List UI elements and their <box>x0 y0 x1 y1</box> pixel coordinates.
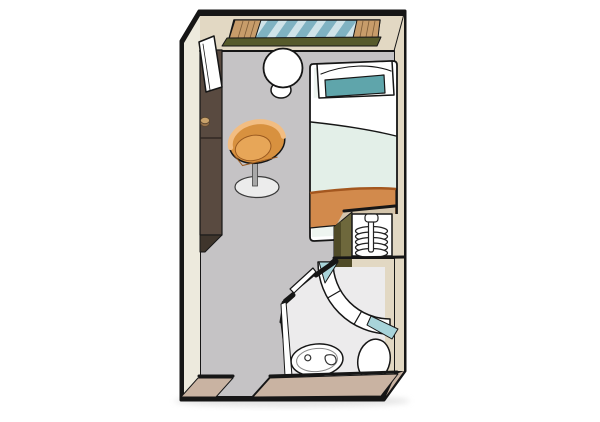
hanger-closet <box>334 206 404 258</box>
bottom-wall <box>181 372 398 397</box>
basin-drain <box>305 355 312 362</box>
closet-bathroom-divider <box>334 257 404 258</box>
cabin-floor-plan <box>0 0 600 422</box>
bottom-wall-right-face <box>253 374 398 397</box>
curtain-left <box>229 20 261 39</box>
window-sill <box>222 37 381 46</box>
floor-plan-canvas <box>0 0 600 422</box>
left-wall-face <box>184 16 200 396</box>
curtain-right <box>353 20 380 38</box>
window-wall <box>200 14 404 52</box>
round-table <box>264 49 303 88</box>
wardrobe-knob <box>201 117 210 123</box>
closet-olive-shade <box>334 221 341 258</box>
bathroom-top-beige <box>352 259 394 267</box>
closet-right-face <box>392 214 403 257</box>
rail-mount <box>365 214 378 222</box>
